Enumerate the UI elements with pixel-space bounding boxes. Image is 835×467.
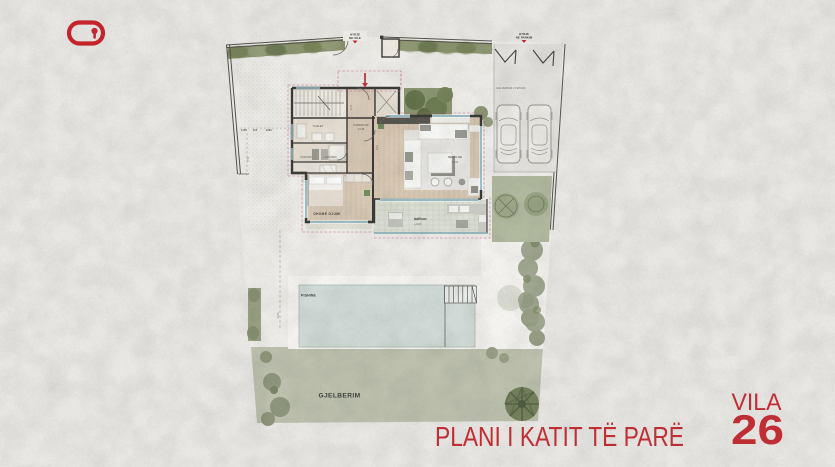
svg-text:26: 26 [731, 406, 784, 453]
svg-text:PLANI I KATIT TË PARË: PLANI I KATIT TË PARË [435, 421, 684, 452]
